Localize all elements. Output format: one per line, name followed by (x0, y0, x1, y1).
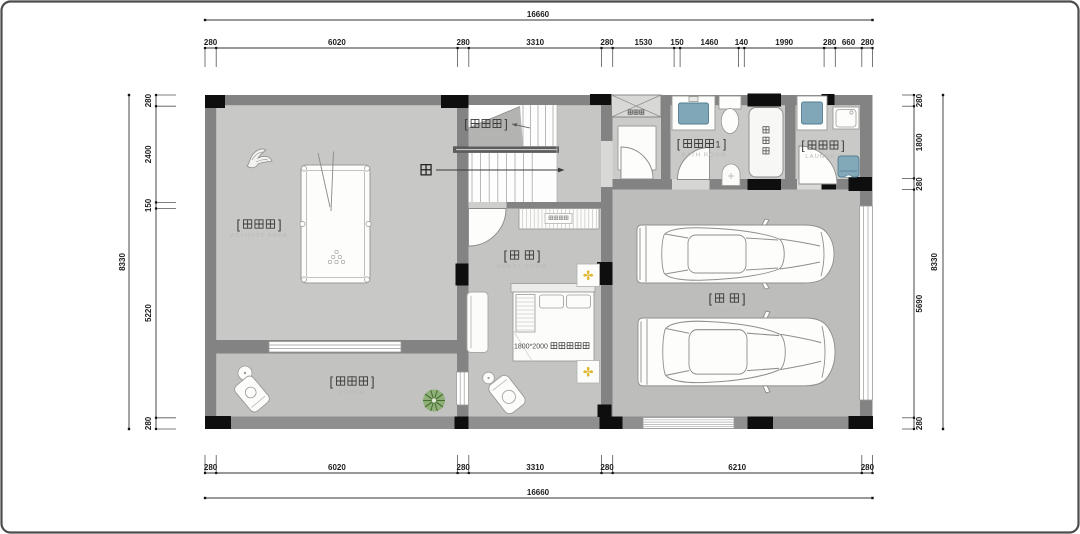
svg-text:280: 280 (823, 38, 837, 47)
svg-text:660: 660 (842, 38, 856, 47)
svg-text:[: [ (329, 374, 333, 389)
svg-text:280: 280 (861, 463, 875, 472)
svg-text:6020: 6020 (328, 463, 346, 472)
svg-text:150: 150 (670, 38, 684, 47)
svg-text:BATH ROOM: BATH ROOM (682, 153, 727, 159)
svg-text:PORCH: PORCH (339, 390, 365, 396)
svg-text:16660: 16660 (527, 10, 550, 19)
svg-text:STORAGE: STORAGE (469, 132, 505, 138)
svg-text:280: 280 (861, 38, 875, 47)
svg-text:5220: 5220 (144, 304, 153, 322)
svg-text:16660: 16660 (527, 488, 550, 497)
svg-text:280: 280 (457, 38, 471, 47)
svg-text:280: 280 (457, 463, 471, 472)
svg-text:[: [ (503, 248, 507, 263)
svg-text:280: 280 (915, 416, 924, 430)
svg-text:]: ] (723, 137, 726, 151)
svg-text:2400: 2400 (144, 145, 153, 163)
svg-text:1460: 1460 (701, 38, 719, 47)
svg-text:280: 280 (204, 38, 218, 47)
svg-text:8330: 8330 (930, 253, 939, 271)
svg-text:]: ] (537, 248, 541, 263)
svg-text:6210: 6210 (728, 463, 746, 472)
svg-text:]: ] (841, 139, 844, 153)
svg-text:280: 280 (915, 177, 924, 191)
svg-text:280: 280 (915, 93, 924, 107)
svg-text:280: 280 (144, 416, 153, 430)
svg-text:1: 1 (715, 140, 720, 150)
svg-text:[: [ (708, 291, 712, 306)
svg-text:]: ] (742, 291, 746, 306)
svg-text:GUEST ROOM: GUEST ROOM (497, 264, 548, 270)
svg-text:1800*2000: 1800*2000 (514, 344, 548, 351)
svg-text:280: 280 (204, 463, 218, 472)
svg-text:]: ] (371, 374, 375, 389)
svg-text:ACTIVITY AREA: ACTIVITY AREA (230, 233, 287, 239)
svg-text:LAUNDRY: LAUNDRY (805, 154, 840, 160)
svg-text:3310: 3310 (526, 38, 544, 47)
svg-text:280: 280 (600, 38, 614, 47)
svg-text:8330: 8330 (118, 253, 127, 271)
svg-text:]: ] (278, 217, 282, 232)
svg-text:3310: 3310 (526, 463, 544, 472)
svg-text:GARAGE: GARAGE (711, 307, 742, 313)
svg-text:1800: 1800 (915, 133, 924, 151)
svg-text:280: 280 (600, 463, 614, 472)
svg-text:5690: 5690 (915, 294, 924, 312)
svg-text:150: 150 (144, 198, 153, 212)
svg-text:280: 280 (144, 93, 153, 107)
svg-text:]: ] (504, 117, 507, 131)
svg-text:[: [ (236, 217, 240, 232)
svg-text:1990: 1990 (775, 38, 793, 47)
svg-text:6020: 6020 (328, 38, 346, 47)
svg-text:140: 140 (735, 38, 749, 47)
svg-text:1530: 1530 (635, 38, 653, 47)
